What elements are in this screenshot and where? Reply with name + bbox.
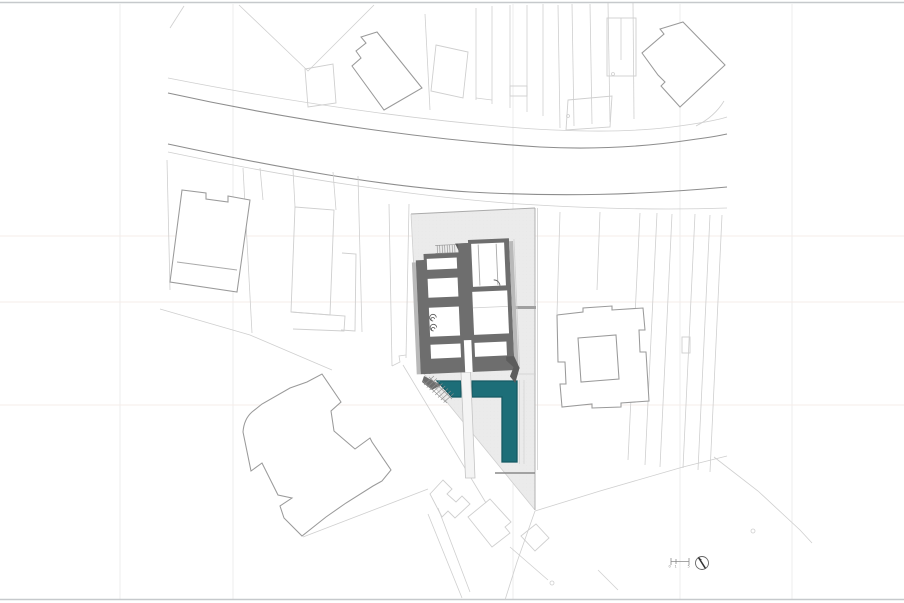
parcels-east (535, 212, 812, 590)
plan-sheet: 0 1 5 (0, 0, 904, 603)
parcels-north (239, 3, 725, 130)
parcels-west (160, 160, 409, 370)
scale-label: 5 (688, 565, 690, 569)
building-diamond (642, 22, 725, 107)
building-north-stepped (352, 32, 422, 110)
walkway-slot (464, 340, 473, 372)
scale-label: 1 (675, 565, 677, 569)
north-arrow-icon (696, 557, 709, 570)
building-west (170, 190, 250, 292)
site-plan-canvas: 0 1 5 (0, 0, 904, 603)
courtyard-inner (578, 335, 619, 382)
scale-label: 0 (669, 565, 672, 569)
road (168, 6, 727, 209)
building-plan (411, 238, 520, 387)
scale-bar: 0 1 5 (669, 558, 690, 569)
